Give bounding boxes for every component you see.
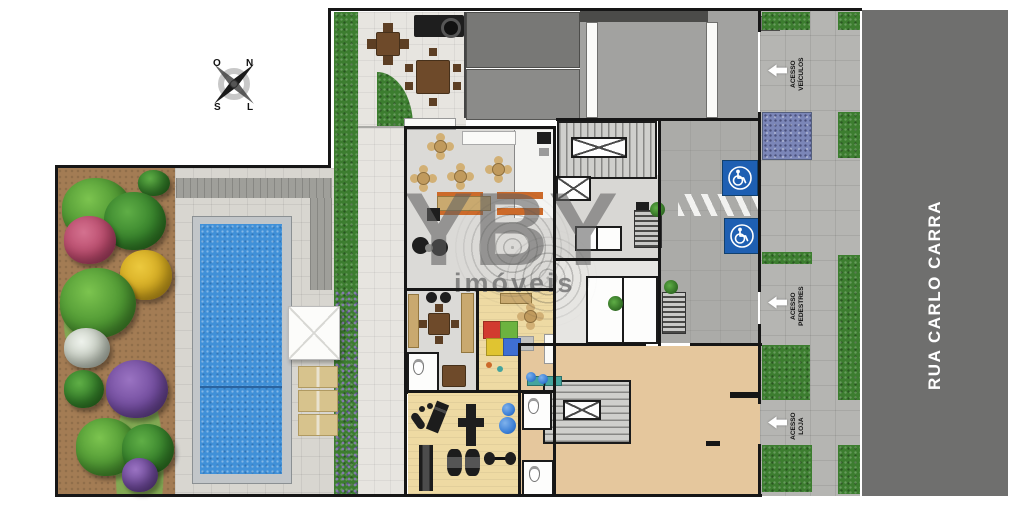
access-label-line1: ACESSO — [790, 398, 798, 454]
elevator — [563, 400, 601, 420]
boundary-wall-west — [55, 165, 58, 497]
bench — [636, 202, 649, 210]
driveway-edge — [580, 10, 708, 22]
exercise-ball — [502, 403, 515, 416]
sun-lounger-pair — [298, 366, 338, 388]
compass-icon: N O S L — [200, 50, 268, 118]
frontage-flowerbed — [762, 112, 812, 160]
barbell-plate — [505, 452, 516, 465]
wall — [404, 288, 556, 291]
vehicle-gate — [586, 22, 598, 118]
access-vehicles-label: ACESSO VEÍCULOS — [790, 46, 806, 102]
terrace-table-small — [376, 32, 400, 56]
access-label-line2: LOJA — [798, 398, 806, 454]
tree-purple — [106, 360, 168, 418]
frontage-planter — [762, 252, 812, 264]
round-table — [434, 140, 447, 153]
wall — [553, 126, 556, 494]
access-label-line2: VEÍCULOS — [798, 46, 806, 102]
restroom — [407, 352, 439, 394]
wall — [520, 343, 646, 346]
wall — [404, 126, 556, 129]
stove-icon — [537, 132, 551, 144]
wheelchair-icon — [728, 166, 752, 190]
sidewalk-hedge — [838, 255, 860, 400]
shop-wall-stub — [706, 441, 720, 446]
multi-gym-arms — [458, 418, 484, 427]
lounge-chair — [426, 292, 437, 303]
shop-wall-stub — [730, 392, 760, 398]
potted-plant — [664, 280, 678, 294]
wc-room — [522, 460, 554, 496]
boundary-wall-east — [758, 444, 761, 497]
access-shop: ACESSO LOJA — [780, 392, 816, 458]
barbell-plate — [484, 452, 495, 465]
games-cabinet — [461, 293, 474, 353]
access-shop-label: ACESSO LOJA — [790, 398, 806, 454]
boundary-wall-upper-west — [328, 8, 331, 168]
street-name-label: RUA CARLO CARRA — [925, 200, 945, 390]
boundary-wall-east — [758, 8, 761, 32]
compass-south-label: S — [214, 102, 221, 113]
garden-wall-north — [57, 165, 331, 168]
compass-north-label: N — [246, 58, 253, 69]
wheelchair-icon — [730, 224, 754, 248]
lobby-rug — [662, 292, 686, 334]
toilet-icon — [529, 466, 540, 482]
compass-west-label: O — [213, 58, 221, 69]
site-floor-plan: RUA CARLO CARRA — [0, 0, 1024, 510]
toilet-icon — [528, 398, 539, 414]
access-vehicles: ACESSO VEÍCULOS — [780, 40, 816, 106]
terrace-dining-table — [416, 60, 450, 94]
pergola — [288, 306, 340, 360]
grill-icon — [441, 18, 461, 38]
dumbbell-icon — [419, 406, 425, 412]
access-label-line2: PEDESTRES — [798, 278, 806, 334]
arrow-left-icon — [768, 296, 787, 309]
weight-machine — [465, 449, 480, 476]
compass-east-label: L — [247, 102, 253, 113]
arrow-left-icon — [768, 416, 787, 429]
watermark-tagline: imóveis — [454, 268, 576, 299]
roof-slab — [466, 12, 580, 68]
access-pedestrians-label: ACESSO PEDESTRES — [790, 278, 806, 334]
vehicle-driveway — [580, 10, 758, 118]
deck-walkway — [310, 198, 332, 290]
bench-press — [419, 445, 433, 491]
walkway — [358, 128, 404, 494]
arrow-left-icon — [768, 64, 787, 77]
wall — [476, 290, 479, 390]
service-room — [622, 276, 658, 344]
accessible-parking-spot — [722, 160, 758, 196]
swimming-pool — [200, 224, 282, 474]
toilet-icon — [413, 359, 424, 375]
watermark-brand: YBY — [404, 178, 618, 282]
wall — [690, 343, 762, 346]
accessible-parking-spot — [724, 218, 760, 254]
games-table — [428, 313, 450, 335]
crosswalk — [678, 194, 760, 216]
dumbbell-icon — [427, 403, 433, 409]
play-mat-red — [483, 321, 501, 339]
bean-bag — [526, 372, 536, 382]
sideboard — [408, 294, 419, 348]
access-pedestrians: ACESSO PEDESTRES — [780, 272, 816, 338]
sidewalk-hedge — [838, 445, 860, 494]
access-label-line1: ACESSO — [790, 46, 798, 102]
access-label-line1: ACESSO — [790, 278, 798, 334]
play-mat-yellow — [486, 338, 504, 356]
weight-machine — [447, 449, 462, 476]
tree-purple — [122, 458, 158, 492]
bbq-counter — [414, 15, 464, 37]
elevator — [571, 137, 627, 158]
wall — [658, 118, 661, 346]
potted-plant — [608, 296, 623, 311]
vehicle-gate — [706, 22, 718, 118]
tree — [64, 370, 104, 408]
boundary-wall-east — [758, 112, 761, 292]
boundary-wall-south — [55, 494, 762, 497]
wall — [518, 343, 521, 497]
exercise-ball — [499, 417, 516, 434]
sink-icon — [539, 148, 549, 156]
tree — [60, 268, 136, 338]
meeting-table — [442, 365, 466, 387]
sidewalk-hedge — [838, 112, 860, 158]
wall — [556, 258, 658, 261]
sun-lounger-pair — [298, 390, 338, 412]
tree-white — [64, 328, 110, 368]
roof-slab — [466, 69, 580, 120]
deck-walkway — [176, 178, 332, 198]
sun-lounger-pair — [298, 414, 338, 436]
toy — [486, 362, 492, 368]
play-mat-green — [500, 321, 518, 339]
toy — [497, 366, 503, 372]
wall — [404, 126, 407, 494]
frontage-planter — [762, 12, 810, 30]
boundary-wall-north — [330, 8, 862, 11]
sidewalk-hedge — [838, 12, 860, 30]
party-counter — [462, 131, 516, 145]
wall — [406, 390, 556, 393]
wc-room — [522, 392, 552, 430]
street-name-wrap: RUA CARLO CARRA — [862, 150, 1008, 440]
tree-pink — [64, 216, 116, 264]
wall — [464, 12, 466, 118]
lounge-chair — [440, 292, 451, 303]
terrace-divider — [358, 126, 404, 128]
pool-lane-line — [200, 386, 282, 388]
bean-bag — [538, 374, 548, 384]
